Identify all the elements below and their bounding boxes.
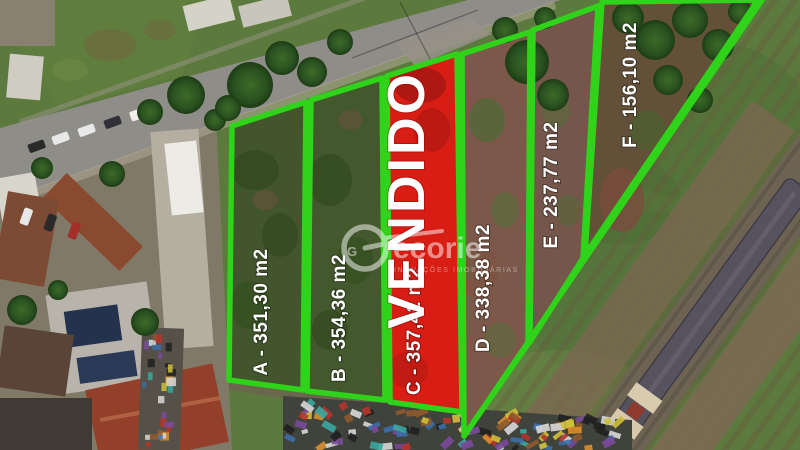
tree	[131, 308, 159, 336]
aerial-photo: A - 351,30 m2 B - 354,36 m2 C - 357,42 m…	[0, 0, 800, 450]
lot-a-label: A - 351,30 m2	[251, 248, 272, 375]
house-roof	[0, 398, 92, 450]
tree	[635, 20, 675, 60]
lot-e-label: E - 237,77 m2	[541, 122, 562, 249]
tree	[137, 99, 163, 125]
tree	[31, 157, 53, 179]
house-roof	[0, 0, 55, 46]
tree	[7, 295, 37, 325]
house-roof	[6, 54, 44, 101]
tree	[327, 29, 353, 55]
tree	[653, 65, 683, 95]
watermark-tagline: INOVAÇÕES IMOBILIÁRIAS	[394, 265, 519, 274]
house-roof	[0, 325, 74, 396]
tree	[167, 76, 205, 114]
watermark-brand: ecorie	[393, 232, 481, 265]
tree	[215, 95, 241, 121]
tree	[297, 57, 327, 87]
lot-f-label: F - 156,10 m2	[620, 22, 641, 148]
lot-b-label: B - 354,36 m2	[329, 254, 350, 382]
tree	[48, 280, 68, 300]
tree	[672, 2, 708, 38]
tree	[265, 41, 299, 75]
tree	[99, 161, 125, 187]
sold-banner-text: VENDIDO	[378, 71, 436, 329]
watermark-monogram: G	[347, 244, 357, 259]
tree	[537, 79, 569, 111]
